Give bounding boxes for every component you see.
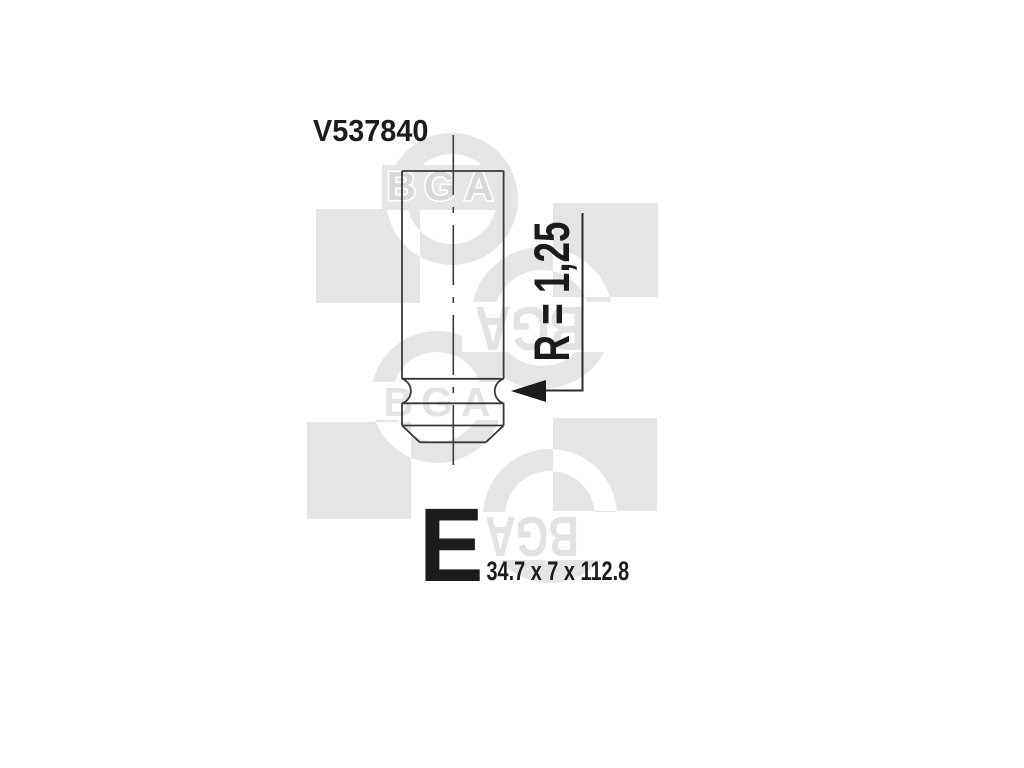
svg-text:V537840: V537840 [313, 114, 428, 148]
svg-text:BGA: BGA [386, 163, 501, 209]
svg-text:BGA: BGA [383, 379, 498, 425]
svg-text:R = 1,25: R = 1,25 [525, 222, 581, 362]
svg-text:34.7 x 7 x 112.8: 34.7 x 7 x 112.8 [487, 557, 630, 587]
svg-text:E: E [419, 487, 484, 604]
